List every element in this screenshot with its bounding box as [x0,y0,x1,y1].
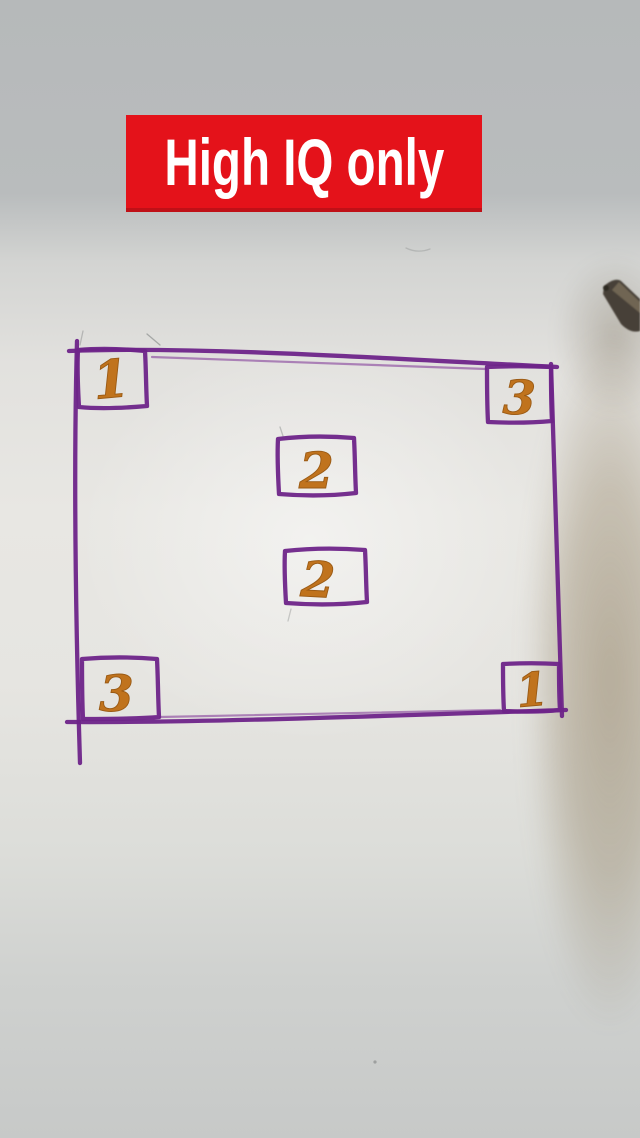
center-number-2: 2 [298,550,336,610]
corner-number-top-right: 3 [502,370,537,426]
corner-number-bottom-left: 3 [99,664,134,723]
puzzle-drawing: 1 3 2 2 3 1 [0,0,640,1138]
corner-number-bottom-right: 1 [514,662,551,719]
video-frame: High IQ only [0,0,640,1138]
center-number-1: 2 [298,441,334,500]
corner-number-top-left: 1 [90,348,131,412]
marker-pen-tip-icon [603,280,640,332]
paper-speck [373,1060,376,1063]
